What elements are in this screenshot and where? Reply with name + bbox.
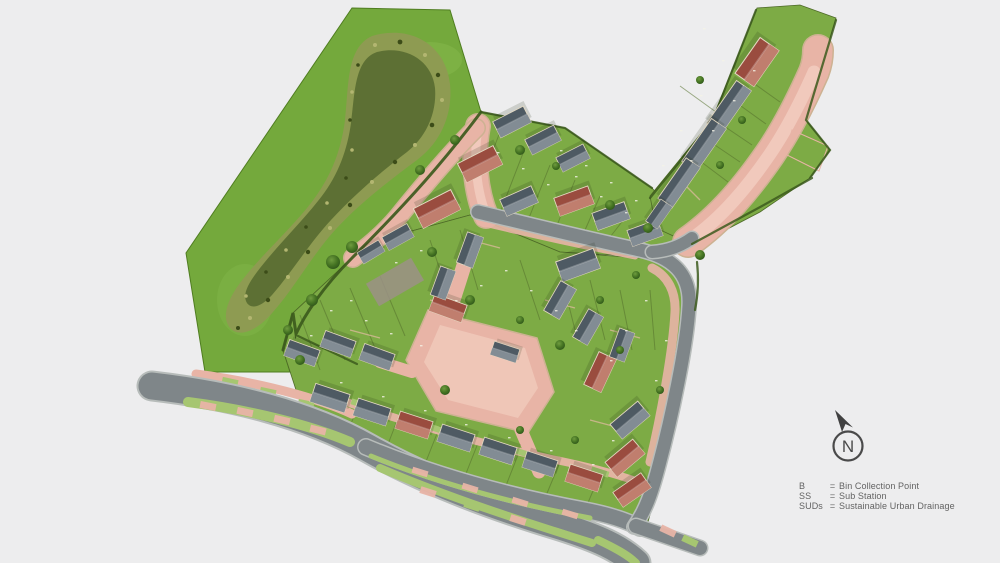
legend-meaning: Sub Station: [839, 491, 887, 501]
legend: B=Bin Collection Point SS=Sub Station SU…: [799, 482, 955, 511]
legend-meaning: Sustainable Urban Drainage: [839, 501, 955, 511]
legend-equals: =: [826, 502, 839, 512]
legend-row-suds: SUDs=Sustainable Urban Drainage: [799, 502, 955, 512]
site-plan-canvas: N: [0, 0, 1000, 563]
legend-meaning: Bin Collection Point: [839, 481, 919, 491]
compass-north-label: N: [842, 437, 854, 456]
site-plan-page: N B=Bin Collection Point SS=Sub Station …: [0, 0, 1000, 563]
legend-abbr: SUDs: [799, 502, 826, 512]
